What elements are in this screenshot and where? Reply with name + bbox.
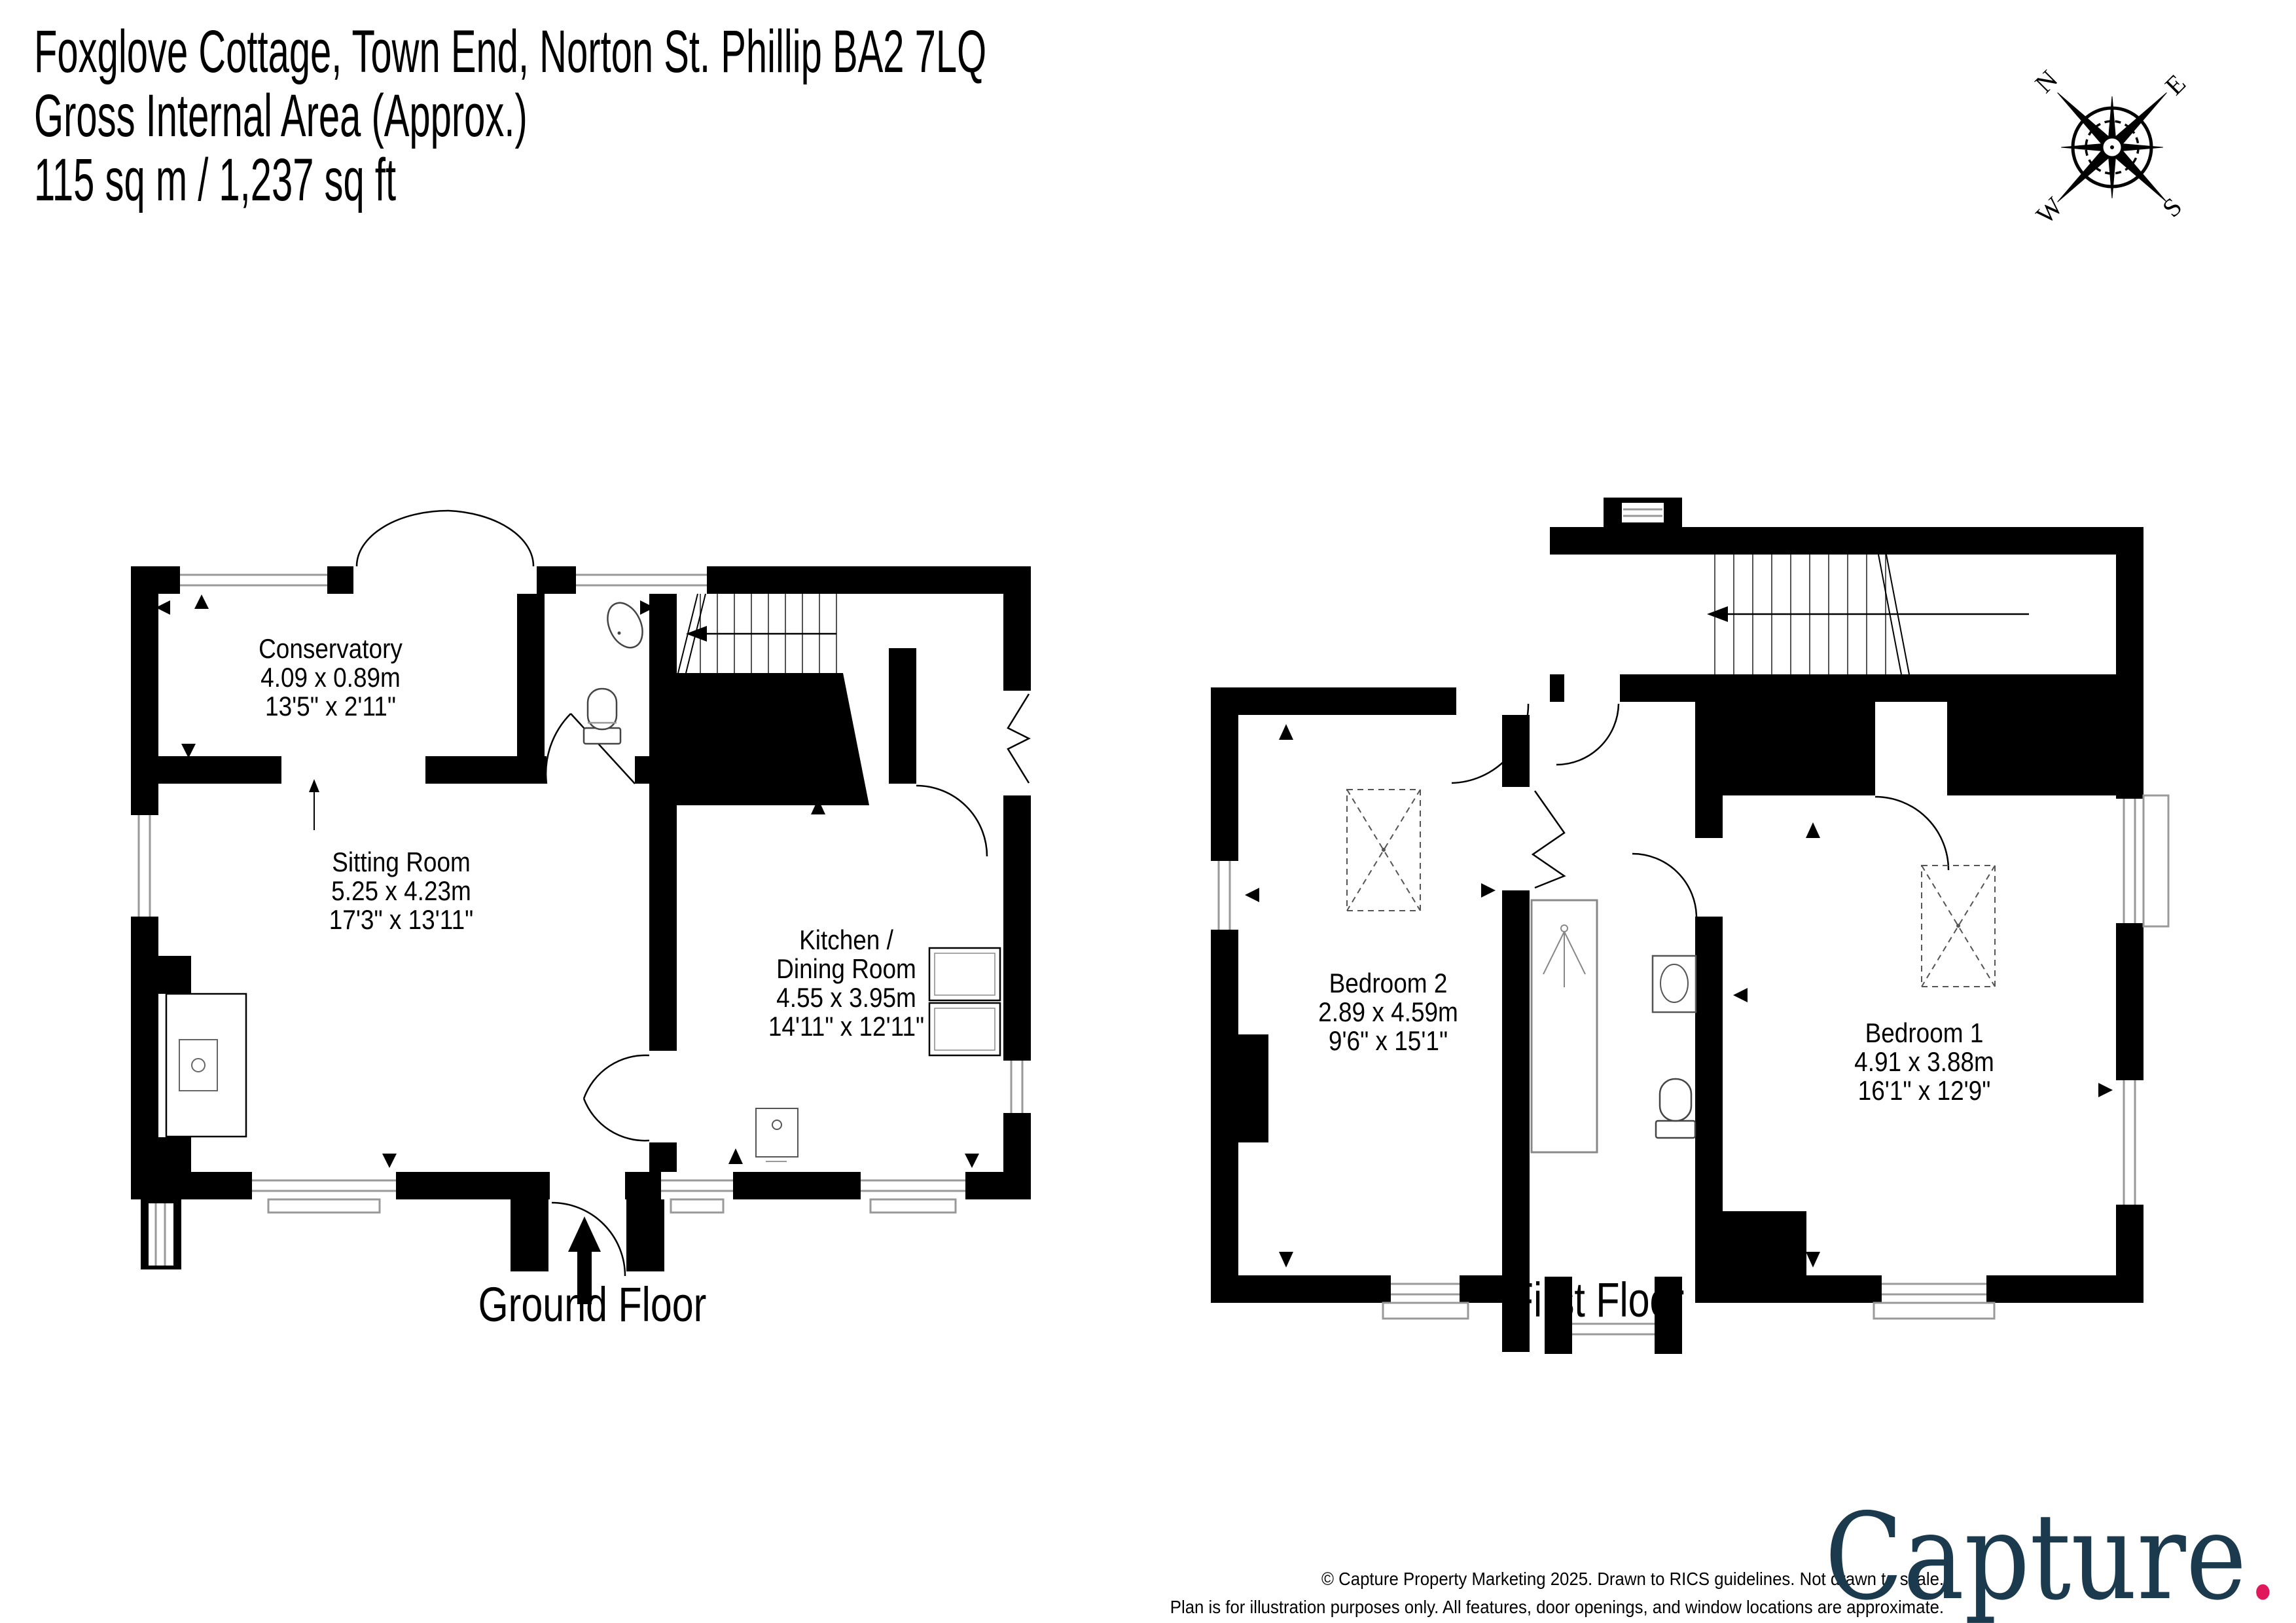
room-label-bedroom2: Bedroom 2 2.89 x 4.59m 9'6" x 15'1" [1273,969,1503,1055]
first-floor-openings [1211,503,2144,1354]
first-floor-label: First Floor [1466,1272,1728,1328]
capture-logo: Capture. [1825,1487,2279,1623]
first-floor-plan [1198,498,2179,1355]
porch-wall-right [626,1199,664,1271]
first-floor-walls [1211,498,2144,1354]
page-title: Foxglove Cottage, Town End, Norton St. P… [34,20,986,212]
wc-toilet-tank [584,728,620,744]
room-label-sitting-room: Sitting Room 5.25 x 4.23m 17'3" x 13'11" [286,848,516,934]
title-address: Foxglove Cottage, Town End, Norton St. P… [34,20,986,84]
cupboard-bifold-door [1533,791,1564,888]
bedroom1-door [1875,797,1948,870]
stairs-direction-arrow [1707,606,1728,622]
first-floor-windows [1219,509,2168,1334]
ground-floor-label: Ground Floor [461,1277,723,1332]
porch-wall-left [511,1199,548,1271]
sitting-kitchen-double-door [584,1055,649,1099]
landing-door [1556,704,1619,765]
floorplan-page: Foxglove Cottage, Town End, Norton St. P… [0,0,2296,1623]
bathroom-door [1632,854,1696,918]
room-label-conservatory: Conservatory 4.09 x 0.89m 13'5" x 2'11" [215,634,446,721]
kitchen-door [916,786,987,856]
first-floor-stairs [1715,555,2029,674]
title-gia: Gross Internal Area (Approx.) [34,84,986,148]
compass-icon: N E S W [2017,52,2207,242]
conservatory-opening-arrow [309,779,319,830]
understair-wall [677,673,869,805]
kitchen-sink-unit [756,1108,798,1157]
logo-dot: . [2246,1487,2279,1623]
room-label-bedroom1: Bedroom 1 4.91 x 3.88m 16'1" x 12'9" [1809,1019,2039,1105]
fireplace [166,994,246,1137]
wc-fixtures [584,597,649,744]
conservatory-double-door [357,511,448,566]
chimney-breast [1238,1034,1268,1142]
bathroom-fixtures [1532,900,1696,1152]
room-label-kitchen: Kitchen / Dining Room 4.55 x 3.95m 14'11… [731,926,961,1041]
bathroom-toilet-tank [1656,1121,1695,1138]
title-area: 115 sq m / 1,237 sq ft [34,148,986,212]
bathroom-toilet-bowl [1660,1079,1691,1121]
